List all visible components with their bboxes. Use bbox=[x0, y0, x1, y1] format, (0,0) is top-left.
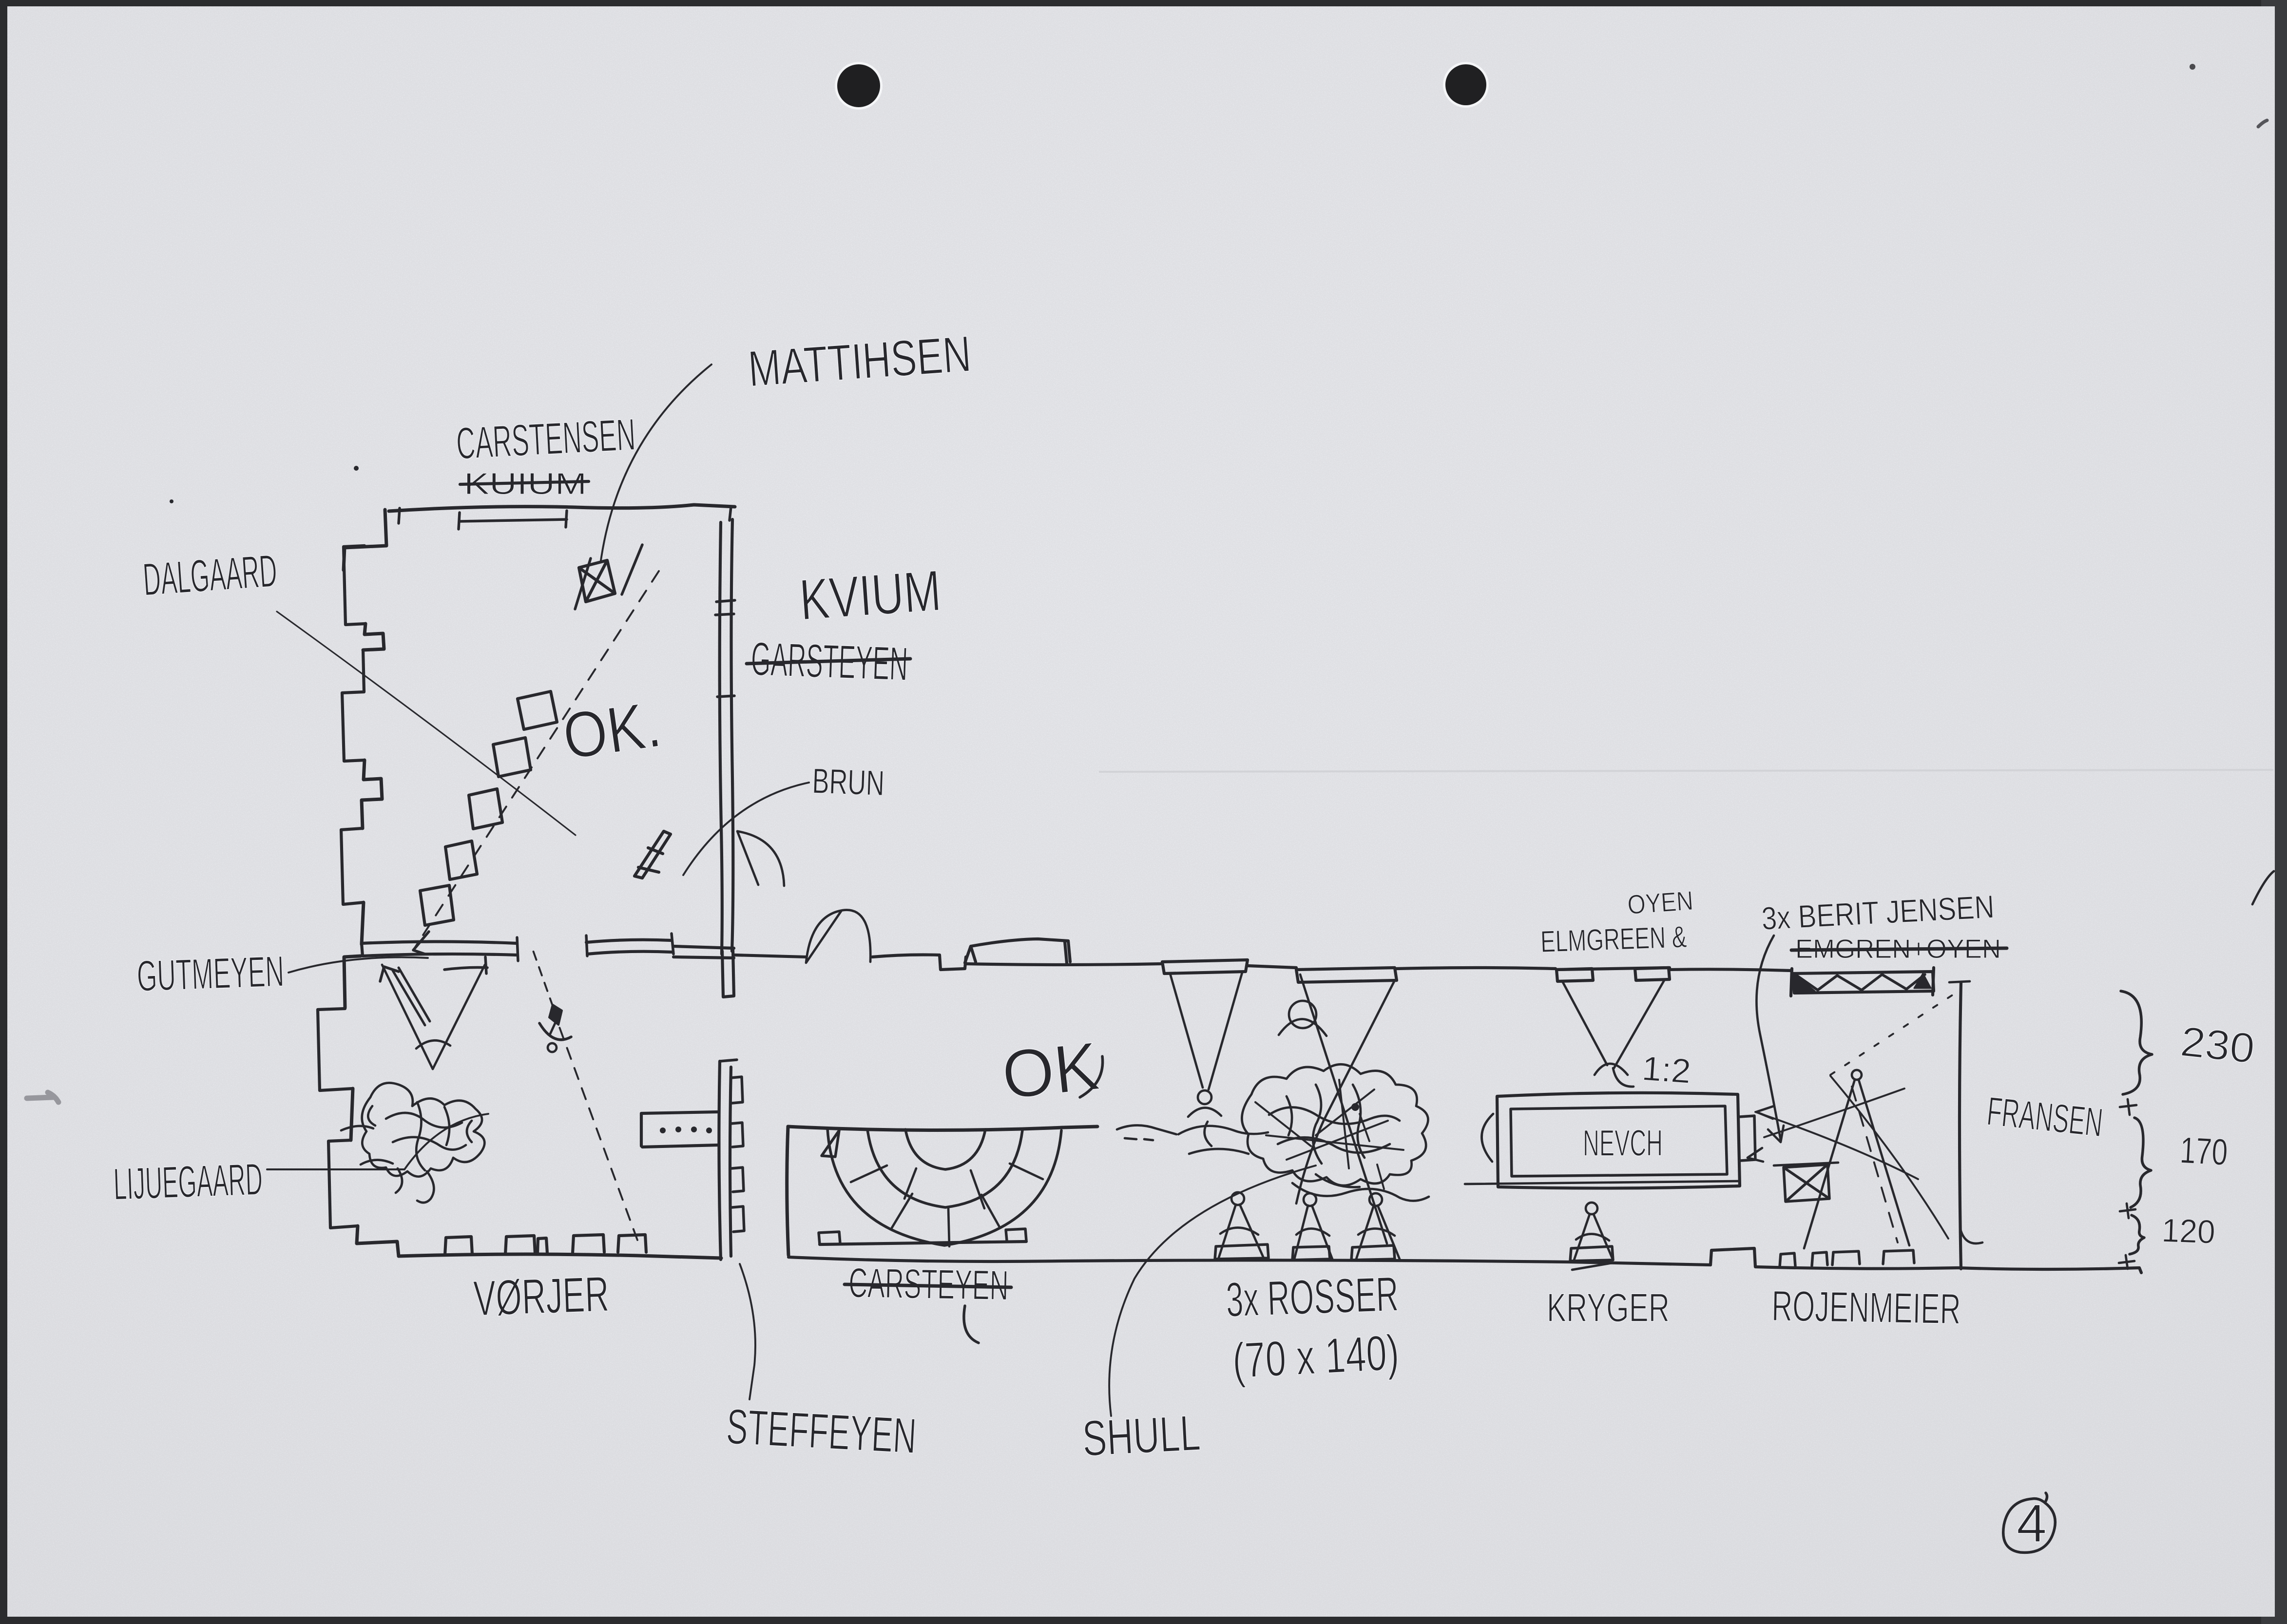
svg-text:LIJUEGAARD: LIJUEGAARD bbox=[113, 1154, 263, 1209]
svg-text:DALGAARD: DALGAARD bbox=[141, 545, 279, 605]
svg-text:CARSTENSEN: CARSTENSEN bbox=[455, 410, 637, 469]
svg-text:STEFFEYEN: STEFFEYEN bbox=[725, 1398, 918, 1464]
svg-text:GUTMEYEN: GUTMEYEN bbox=[136, 947, 285, 1000]
svg-text:1:2: 1:2 bbox=[1641, 1049, 1692, 1090]
svg-text:170: 170 bbox=[2179, 1129, 2229, 1173]
svg-text:VØRJER: VØRJER bbox=[473, 1266, 610, 1326]
svg-text:3x ROSSER: 3x ROSSER bbox=[1225, 1267, 1400, 1327]
svg-text:NEVCH: NEVCH bbox=[1583, 1123, 1663, 1164]
svg-text:OK: OK bbox=[999, 1028, 1102, 1113]
svg-text:KRYGER: KRYGER bbox=[1547, 1285, 1670, 1330]
svg-text:SHULL: SHULL bbox=[1081, 1404, 1202, 1467]
svg-text:(70 x 140): (70 x 140) bbox=[1231, 1324, 1400, 1389]
svg-text:120: 120 bbox=[2161, 1212, 2216, 1251]
svg-text:OK.: OK. bbox=[558, 688, 665, 773]
svg-text:4: 4 bbox=[2017, 1493, 2047, 1553]
svg-text:230: 230 bbox=[2178, 1018, 2257, 1072]
svg-text:KVIUM: KVIUM bbox=[798, 558, 943, 632]
svg-text:BRUN: BRUN bbox=[811, 762, 885, 803]
svg-text:OYEN: OYEN bbox=[1627, 885, 1694, 920]
svg-text:ROJENMEIER: ROJENMEIER bbox=[1771, 1281, 1961, 1333]
svg-text:ELMGREEN &: ELMGREEN & bbox=[1540, 920, 1687, 959]
